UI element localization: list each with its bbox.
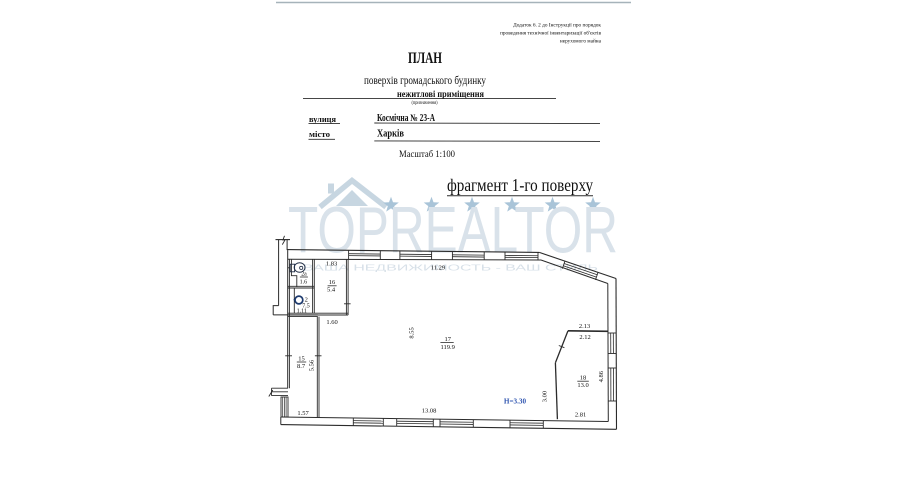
svg-text:13.0: 13.0 bbox=[577, 382, 588, 389]
svg-text:1.6: 1.6 bbox=[300, 279, 308, 285]
svg-text:8.55: 8.55 bbox=[409, 327, 416, 338]
svg-text:2.13: 2.13 bbox=[579, 323, 590, 330]
svg-text:Н=3.30: Н=3.30 bbox=[504, 398, 527, 406]
svg-text:8.7: 8.7 bbox=[297, 363, 306, 370]
svg-text:2: 2 bbox=[305, 297, 308, 304]
svg-text:3.00: 3.00 bbox=[542, 391, 549, 402]
svg-text:11.29: 11.29 bbox=[431, 265, 445, 272]
svg-text:1.83: 1.83 bbox=[326, 261, 337, 268]
svg-text:TOPREALTOR: TOPREALTOR bbox=[288, 193, 618, 267]
svg-text:1.60: 1.60 bbox=[326, 319, 337, 326]
svg-text:Космічна № 23-А: Космічна № 23-А bbox=[377, 113, 436, 124]
svg-text:проведення технічної інвентари: проведення технічної інвентаризації об'є… bbox=[500, 30, 601, 37]
svg-text:(призначення): (призначення) bbox=[412, 99, 438, 106]
svg-text:місто: місто bbox=[309, 129, 330, 139]
svg-text:119.9: 119.9 bbox=[441, 344, 455, 351]
svg-text:1.57: 1.57 bbox=[297, 410, 309, 417]
svg-text:13.08: 13.08 bbox=[422, 408, 437, 415]
svg-text:Масштаб 1:100: Масштаб 1:100 bbox=[399, 149, 455, 160]
svg-text:5.56: 5.56 bbox=[308, 359, 315, 371]
svg-text:18: 18 bbox=[580, 375, 587, 382]
svg-text:Додаток 6. 2 до Інструкції про: Додаток 6. 2 до Інструкції про порядок bbox=[513, 23, 601, 29]
svg-text:16: 16 bbox=[329, 279, 336, 286]
svg-text:нерухомого майна: нерухомого майна bbox=[560, 38, 602, 45]
svg-text:2.81: 2.81 bbox=[575, 412, 586, 419]
svg-text:5.4: 5.4 bbox=[327, 287, 336, 294]
svg-text:15: 15 bbox=[298, 356, 305, 363]
svg-text:1.11: 1.11 bbox=[297, 309, 307, 315]
svg-text:нежитлові приміщення: нежитлові приміщення bbox=[397, 89, 484, 99]
svg-text:4.86: 4.86 bbox=[598, 370, 605, 382]
svg-text:Харків: Харків bbox=[377, 129, 405, 140]
svg-text:вулиця: вулиця bbox=[309, 114, 336, 124]
svg-text:поверхів громадського будинку: поверхів громадського будинку bbox=[364, 75, 486, 87]
svg-text:2.12: 2.12 bbox=[579, 334, 590, 341]
svg-text:ПЛАН: ПЛАН bbox=[408, 50, 442, 67]
